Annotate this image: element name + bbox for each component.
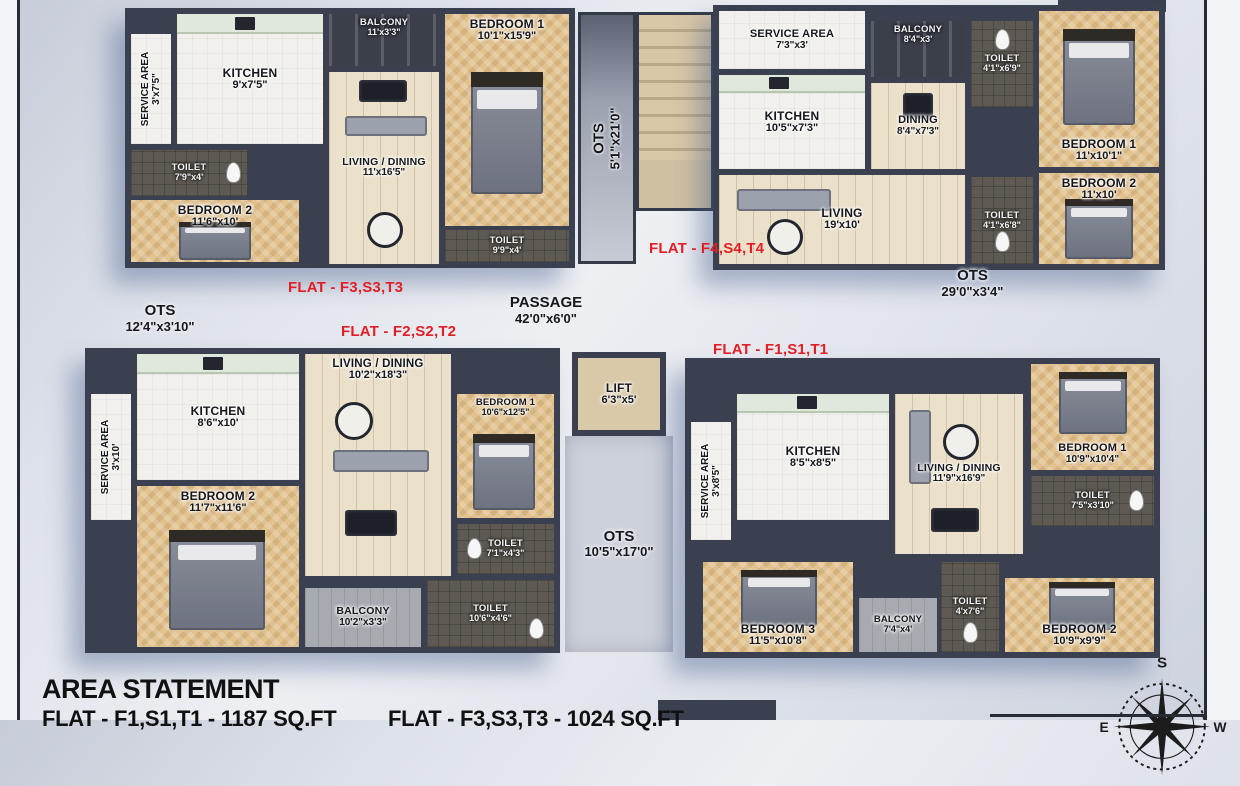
ots-left-label: OTS 12'4"x3'10" <box>95 303 225 334</box>
room-label: TOILET 9'9"x4' <box>490 236 525 256</box>
room-f2-service-area: SERVICE AREA 3'x10' <box>91 394 131 520</box>
room-dims: 4'1"x6'9" <box>983 64 1021 74</box>
room-f2-bedroom1: BEDROOM 1 10'6"x12'5" <box>457 394 554 518</box>
stove-icon <box>797 396 817 409</box>
room-dims: 10'1"x15'9" <box>470 31 544 43</box>
flat-f1-plan: SERVICE AREA 3'x8'5" KITCHEN 8'5"x8'5" L… <box>685 358 1160 658</box>
room-f3-toilet: TOILET 7'9"x4' <box>131 150 247 196</box>
room-dims: 10'6"x4'6" <box>469 614 512 624</box>
ots-bottom-label: OTS 10'5"x17'0" <box>584 529 653 560</box>
room-f2-balcony: BALCONY 10'2"x3'3" <box>305 588 421 647</box>
room-f3-bedroom2: BEDROOM 2 11'6"x10' <box>131 200 299 262</box>
kitchen-counter-icon <box>719 75 865 93</box>
frame-margin-left <box>0 0 17 720</box>
room-dims: 3'x10' <box>111 398 122 516</box>
room-dims: 11'6"x10' <box>178 217 252 229</box>
passage-label: PASSAGE 42'0"x6'0" <box>480 295 612 326</box>
room-label: TOILET 4'1"x6'9" <box>981 50 1023 78</box>
bed-icon <box>473 434 535 510</box>
frame-line-right <box>1204 0 1207 720</box>
room-label: SERVICE AREA 3'x7'5" <box>140 37 162 141</box>
area-statement-line-2: FLAT - F3,S3,T3 - 1024 SQ.FT <box>388 706 684 732</box>
ots-top-label: OTS 5'1"x21'0" <box>592 38 623 238</box>
flat-f3-plan: SERVICE AREA 3'x7'5" KITCHEN 9'x7'5" BAL… <box>125 8 575 268</box>
toilet-seat-icon <box>1129 490 1144 511</box>
room-label: TOILET 4'1"x6'8" <box>981 207 1023 235</box>
room-dims: 11'7"x11'6" <box>181 503 255 515</box>
room-f1-balcony: BALCONY 7'4"x4' <box>859 598 937 652</box>
room-name: KITCHEN <box>765 110 820 123</box>
room-dims: 11'9"x16'9" <box>917 474 1001 485</box>
room-dims: 9'x7'5" <box>223 80 278 92</box>
room-dims: 11'x3'3" <box>360 28 408 38</box>
frame-margin-right <box>1207 0 1240 720</box>
room-dims: 7'4"x4' <box>874 625 922 635</box>
room-name: BEDROOM 2 <box>181 490 255 503</box>
room-dims: 8'6"x10' <box>191 418 246 430</box>
room-f4-service-area: SERVICE AREA 7'3"x3' <box>719 11 865 69</box>
room-dims: 10'9"x9'9" <box>1042 636 1116 648</box>
room-dims: 8'4"x3' <box>894 35 942 45</box>
room-label: TOILET 10'6"x4'6" <box>467 600 514 628</box>
room-f4-toilet2: TOILET 4'1"x6'8" <box>971 177 1033 264</box>
room-label: TOILET 7'5"x3'10" <box>1069 487 1116 515</box>
room-f1-bedroom2: BEDROOM 2 10'9"x9'9" <box>1005 578 1154 652</box>
room-dims: 10'2"x3'3" <box>336 618 389 629</box>
room-label: DINING 8'4"x7'3" <box>895 111 941 142</box>
room-name: SERVICE AREA <box>700 426 711 536</box>
toilet-seat-icon <box>226 162 241 183</box>
room-name: BEDROOM 2 <box>1062 177 1136 190</box>
room-f4-bedroom2: BEDROOM 2 11'x10' <box>1039 173 1159 264</box>
toilet-seat-icon <box>467 538 482 559</box>
room-f4-kitchen: KITCHEN 10'5"x7'3" <box>719 75 865 169</box>
room-name: SERVICE AREA <box>750 29 834 41</box>
flat-label-f4: FLAT - F4,S4,T4 <box>649 240 764 257</box>
compass-south-label: S <box>1157 654 1167 671</box>
room-dims: 7'1"x4'3" <box>487 549 525 559</box>
room-f1-toilet2: TOILET 4'x7'6" <box>941 562 999 652</box>
sofa-icon <box>737 189 831 211</box>
room-label: LIVING 19'x10' <box>819 203 864 236</box>
room-f1-bedroom3: BEDROOM 3 11'5"x10'8" <box>703 562 853 652</box>
room-dims: 7'3"x3' <box>750 41 834 52</box>
room-name: OTS <box>905 268 1040 285</box>
bed-icon <box>1065 199 1133 259</box>
room-label: BEDROOM 2 11'6"x10' <box>176 200 254 233</box>
room-label: KITCHEN 10'5"x7'3" <box>763 106 822 139</box>
toilet-seat-icon <box>995 29 1010 50</box>
room-label: SERVICE AREA 3'x8'5" <box>700 426 722 536</box>
room-name: OTS <box>584 529 653 546</box>
room-dims: 10'9"x10'4" <box>1058 455 1126 466</box>
room-f1-living-dining: LIVING / DINING 11'9"x16'9" <box>895 394 1023 554</box>
room-name: DINING <box>897 115 939 127</box>
bed-icon <box>1059 372 1127 434</box>
room-dims: 8'5"x8'5" <box>786 458 841 470</box>
ots-bottom-area: OTS 10'5"x17'0" <box>565 436 673 652</box>
room-name: SERVICE AREA <box>140 37 151 141</box>
room-name: KITCHEN <box>191 405 246 418</box>
room-dims: 10'2"x18'3" <box>332 370 423 382</box>
room-label: TOILET 7'1"x4'3" <box>485 535 527 563</box>
round-table-icon <box>335 402 373 440</box>
compass-west-label: W <box>1213 720 1227 735</box>
room-name: LIFT <box>602 382 637 395</box>
room-label: LIVING / DINING 11'9"x16'9" <box>915 459 1003 489</box>
flat-label-f2: FLAT - F2,S2,T2 <box>341 323 456 340</box>
room-label: BEDROOM 1 11'x10'1" <box>1060 134 1138 167</box>
stove-icon <box>235 17 255 30</box>
room-name: KITCHEN <box>786 445 841 458</box>
staircase <box>636 12 714 166</box>
room-label: BEDROOM 1 10'6"x12'5" <box>474 394 537 422</box>
room-label: BEDROOM 2 11'x10' <box>1060 173 1138 206</box>
room-label: BEDROOM 3 11'5"x10'8" <box>739 619 817 652</box>
stove-icon <box>203 357 223 370</box>
room-dims: 11'x16'5" <box>342 168 426 179</box>
room-dims: 42'0"x6'0" <box>480 312 612 326</box>
room-f4-bedroom1: BEDROOM 1 11'x10'1" <box>1039 11 1159 167</box>
room-f2-kitchen: KITCHEN 8'6"x10' <box>137 354 299 480</box>
room-label: BEDROOM 2 11'7"x11'6" <box>179 486 257 519</box>
room-name: OTS <box>95 303 225 320</box>
room-dims: 11'x10'1" <box>1062 151 1136 163</box>
frame-line-bottom <box>990 714 1207 717</box>
room-f3-bedroom1: BEDROOM 1 10'1"x15'9" <box>445 14 569 226</box>
room-f1-toilet: TOILET 7'5"x3'10" <box>1031 476 1154 526</box>
sofa-icon <box>333 450 429 472</box>
flat-label-f1: FLAT - F1,S1,T1 <box>713 341 828 358</box>
room-dims: 7'5"x3'10" <box>1071 501 1114 511</box>
room-label: LIVING / DINING 10'2"x18'3" <box>330 354 425 386</box>
room-label: SERVICE AREA 7'3"x3' <box>748 25 836 56</box>
ots-top-shaft: OTS 5'1"x21'0" <box>578 12 636 264</box>
room-dims: 4'1"x6'8" <box>983 221 1021 231</box>
frame-line-left <box>17 0 20 720</box>
room-name: BEDROOM 1 <box>470 18 544 31</box>
stair-landing <box>636 160 714 211</box>
room-f2-living-dining: LIVING / DINING 10'2"x18'3" <box>305 354 451 576</box>
area-statement-line-1: FLAT - F1,S1,T1 - 1187 SQ.FT <box>42 706 336 732</box>
flat-f2-plan: SERVICE AREA 3'x10' KITCHEN 8'6"x10' LIV… <box>85 348 560 653</box>
floor-plan: OTS 5'1"x21'0" SERVICE AREA 3'x7'5" KITC… <box>0 0 1240 720</box>
stove-icon <box>769 77 789 89</box>
room-dims: 5'1"x21'0" <box>608 38 622 238</box>
room-dims: 7'9"x4' <box>172 173 207 183</box>
room-dims: 29'0"x3'4" <box>905 285 1040 299</box>
room-dims: 11'x10' <box>1062 190 1136 202</box>
toilet-seat-icon <box>963 622 978 643</box>
room-label: BEDROOM 1 10'1"x15'9" <box>468 14 546 47</box>
room-name: OTS <box>592 38 609 238</box>
room-label: BALCONY 7'4"x4' <box>872 611 924 639</box>
bed-icon <box>741 570 817 626</box>
dining-table-icon <box>359 80 407 102</box>
room-dims: 3'x8'5" <box>711 426 722 536</box>
room-f3-service-area: SERVICE AREA 3'x7'5" <box>131 34 171 144</box>
room-f2-bedroom2: BEDROOM 2 11'7"x11'6" <box>137 486 299 647</box>
room-label: TOILET 4'x7'6" <box>951 593 990 621</box>
room-dims: 10'5"x7'3" <box>765 123 820 135</box>
dining-table-icon <box>931 508 979 532</box>
room-label: LIFT 6'3"x5' <box>600 378 639 411</box>
room-f3-balcony: BALCONY 11'x3'3" <box>329 14 439 66</box>
dining-table-icon <box>345 510 397 536</box>
room-f4-dining: DINING 8'4"x7'3" <box>871 83 965 169</box>
room-label: TOILET 7'9"x4' <box>170 159 209 187</box>
room-f1-kitchen: KITCHEN 8'5"x8'5" <box>737 394 889 520</box>
round-table-icon <box>767 219 803 255</box>
room-f4-toilet: TOILET 4'1"x6'9" <box>971 21 1033 107</box>
room-f1-bedroom1: BEDROOM 1 10'9"x10'4" <box>1031 364 1154 470</box>
room-f1-service-area: SERVICE AREA 3'x8'5" <box>691 422 731 540</box>
flat-f4-plan: SERVICE AREA 7'3"x3' BALCONY 8'4"x3' TOI… <box>713 5 1165 270</box>
room-f2-toilet2: TOILET 10'6"x4'6" <box>427 580 554 647</box>
room-dims: 11'5"x10'8" <box>741 636 815 648</box>
area-statement-title: AREA STATEMENT <box>42 674 279 705</box>
room-label: KITCHEN 9'x7'5" <box>221 63 280 96</box>
room-f3-kitchen: KITCHEN 9'x7'5" <box>177 14 323 144</box>
room-dims: 10'6"x12'5" <box>476 408 535 418</box>
room-name: PASSAGE <box>480 295 612 312</box>
room-label: BEDROOM 1 10'9"x10'4" <box>1056 439 1128 470</box>
room-label: BALCONY 10'2"x3'3" <box>334 602 391 632</box>
room-f3-toilet2: TOILET 9'9"x4' <box>445 230 569 262</box>
room-label: BALCONY 11'x3'3" <box>358 14 410 42</box>
room-label: KITCHEN 8'6"x10' <box>189 401 248 434</box>
flat-label-f3: FLAT - F3,S3,T3 <box>288 279 403 296</box>
room-label: SERVICE AREA 3'x10' <box>100 398 122 516</box>
compass-east-label: E <box>1099 720 1108 735</box>
room-label: KITCHEN 8'5"x8'5" <box>784 441 843 474</box>
lift: LIFT 6'3"x5' <box>572 352 666 436</box>
bed-icon <box>471 72 543 194</box>
room-dims: 6'3"x5' <box>602 395 637 407</box>
bed-icon <box>1063 29 1135 125</box>
round-table-icon <box>943 424 979 460</box>
room-dims: 19'x10' <box>821 220 862 232</box>
room-dims: 10'5"x17'0" <box>584 545 653 559</box>
room-f4-balcony: BALCONY 8'4"x3' <box>871 21 965 77</box>
toilet-seat-icon <box>529 618 544 639</box>
ots-right-label: OTS 29'0"x3'4" <box>905 268 1040 299</box>
sofa-icon <box>345 116 427 136</box>
bed-icon <box>169 530 265 630</box>
room-dims: 4'x7'6" <box>953 607 988 617</box>
room-label: LIVING / DINING 11'x16'5" <box>340 153 428 183</box>
room-label: BALCONY 8'4"x3' <box>892 21 944 49</box>
room-dims: 3'x7'5" <box>151 37 162 141</box>
room-name: KITCHEN <box>223 67 278 80</box>
room-dims: 12'4"x3'10" <box>95 320 225 334</box>
room-name: SERVICE AREA <box>100 398 111 516</box>
room-f2-toilet: TOILET 7'1"x4'3" <box>457 524 554 574</box>
room-dims: 9'9"x4' <box>490 246 525 256</box>
room-f3-living-dining: LIVING / DINING 11'x16'5" <box>329 72 439 264</box>
round-table-icon <box>367 212 403 248</box>
room-name: BEDROOM 2 <box>178 204 252 217</box>
room-dims: 8'4"x7'3" <box>897 127 939 138</box>
